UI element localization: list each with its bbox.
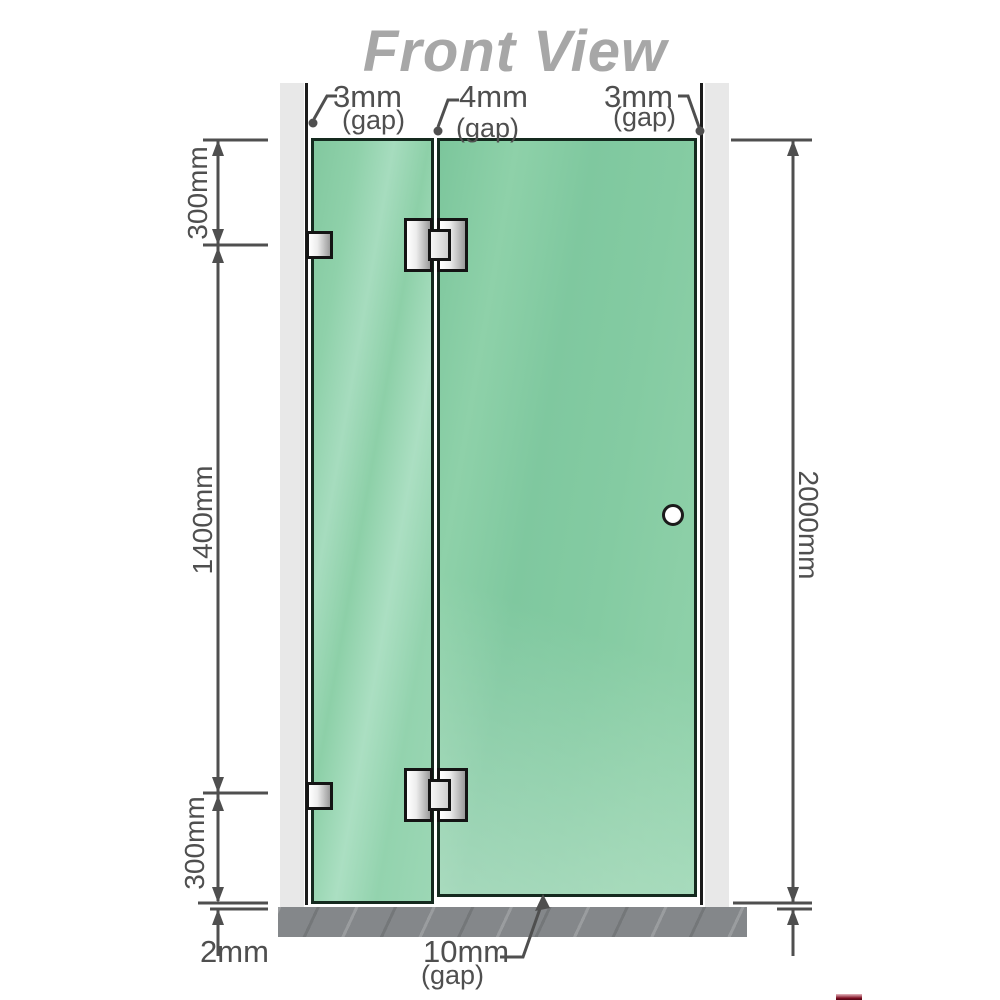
hinge-top-knuckle bbox=[428, 229, 451, 261]
front-view-diagram: Front View bbox=[0, 0, 1000, 1000]
wall-bracket-top bbox=[306, 231, 333, 259]
label-floor-clearance: 2mm bbox=[200, 936, 269, 967]
label-gap-right-suffix: (gap) bbox=[613, 104, 676, 131]
diagram-title: Front View bbox=[360, 18, 670, 85]
leader-gap-right bbox=[678, 96, 699, 127]
floor-base bbox=[278, 907, 747, 937]
wall-right-edge-line bbox=[700, 83, 703, 905]
label-right-dimension-total: 2000mm bbox=[793, 465, 823, 585]
label-left-dimension-middle: 1400mm bbox=[188, 460, 218, 580]
door-panel-glass bbox=[437, 138, 697, 897]
wall-bracket-bottom bbox=[306, 782, 333, 810]
label-gap-left-suffix: (gap) bbox=[342, 107, 405, 134]
wall-left bbox=[280, 83, 304, 907]
hinge-bottom-knuckle bbox=[428, 779, 451, 811]
label-gap-middle-suffix: (gap) bbox=[456, 115, 519, 142]
label-left-dimension-top: 300mm bbox=[183, 143, 213, 243]
door-handle-knob bbox=[662, 504, 684, 526]
wall-right bbox=[705, 83, 729, 907]
label-left-dimension-bottom: 300mm bbox=[180, 793, 210, 893]
logo-fragment bbox=[836, 994, 862, 1000]
label-gap-middle-value: 4mm bbox=[459, 81, 528, 112]
label-gap-bottom-suffix: (gap) bbox=[421, 962, 484, 989]
